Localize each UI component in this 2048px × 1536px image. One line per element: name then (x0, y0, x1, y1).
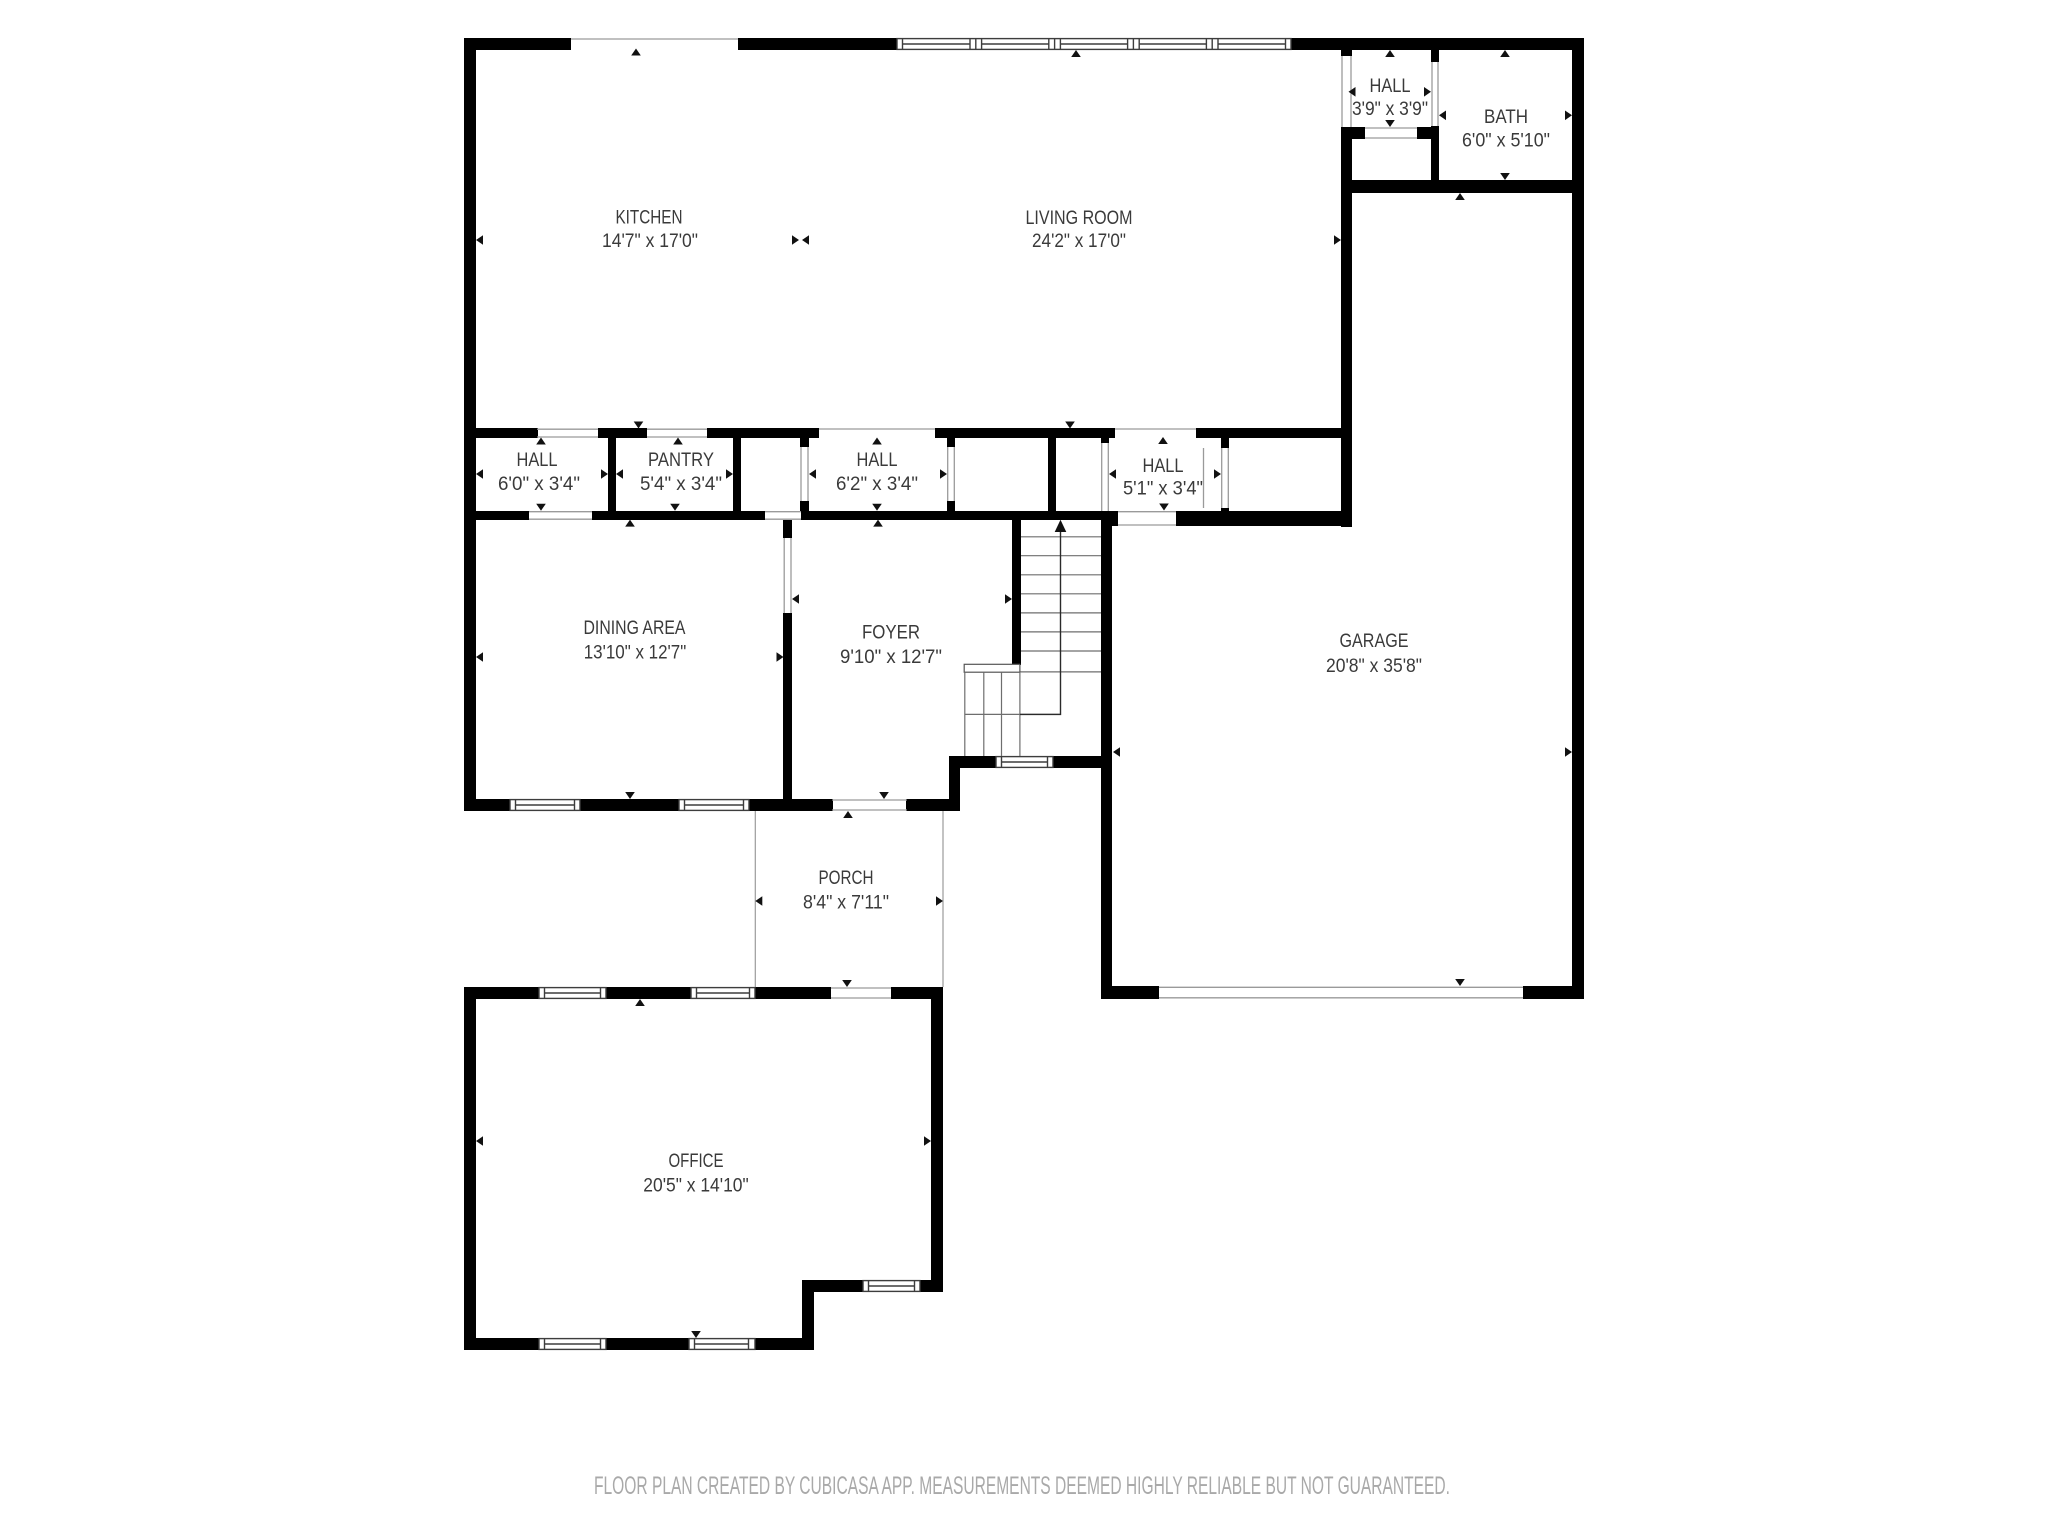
svg-text:8'4" x 7'11": 8'4" x 7'11" (803, 893, 889, 914)
svg-text:5'4" x 3'4": 5'4" x 3'4" (640, 474, 722, 495)
svg-text:6'0" x 3'4": 6'0" x 3'4" (498, 474, 580, 495)
svg-text:GARAGE: GARAGE (1340, 631, 1409, 652)
svg-text:OFFICE: OFFICE (669, 1151, 724, 1172)
svg-text:5'1" x 3'4": 5'1" x 3'4" (1123, 478, 1203, 499)
svg-text:20'5" x 14'10": 20'5" x 14'10" (643, 1176, 748, 1197)
svg-text:6'0" x 5'10": 6'0" x 5'10" (1462, 130, 1550, 151)
svg-text:HALL: HALL (857, 450, 898, 471)
svg-text:PORCH: PORCH (819, 868, 874, 889)
svg-text:HALL: HALL (517, 450, 558, 471)
svg-text:20'8" x 35'8": 20'8" x 35'8" (1326, 656, 1422, 677)
svg-text:DINING AREA: DINING AREA (584, 618, 686, 639)
svg-text:KITCHEN: KITCHEN (616, 208, 683, 229)
svg-text:9'10" x 12'7": 9'10" x 12'7" (840, 647, 942, 668)
svg-text:FLOOR PLAN CREATED BY CUBICASA: FLOOR PLAN CREATED BY CUBICASA APP. MEAS… (594, 1472, 1450, 1500)
svg-text:PANTRY: PANTRY (648, 450, 714, 471)
svg-text:LIVING ROOM: LIVING ROOM (1026, 208, 1133, 229)
svg-text:BATH: BATH (1484, 107, 1528, 128)
svg-text:FOYER: FOYER (862, 622, 920, 643)
svg-text:HALL: HALL (1370, 76, 1411, 97)
svg-text:HALL: HALL (1143, 456, 1184, 477)
svg-text:13'10" x 12'7": 13'10" x 12'7" (584, 643, 687, 664)
svg-text:3'9" x 3'9": 3'9" x 3'9" (1352, 99, 1428, 120)
svg-text:14'7" x 17'0": 14'7" x 17'0" (602, 231, 698, 252)
svg-text:6'2" x 3'4": 6'2" x 3'4" (836, 474, 918, 495)
svg-text:24'2" x 17'0": 24'2" x 17'0" (1032, 231, 1126, 252)
